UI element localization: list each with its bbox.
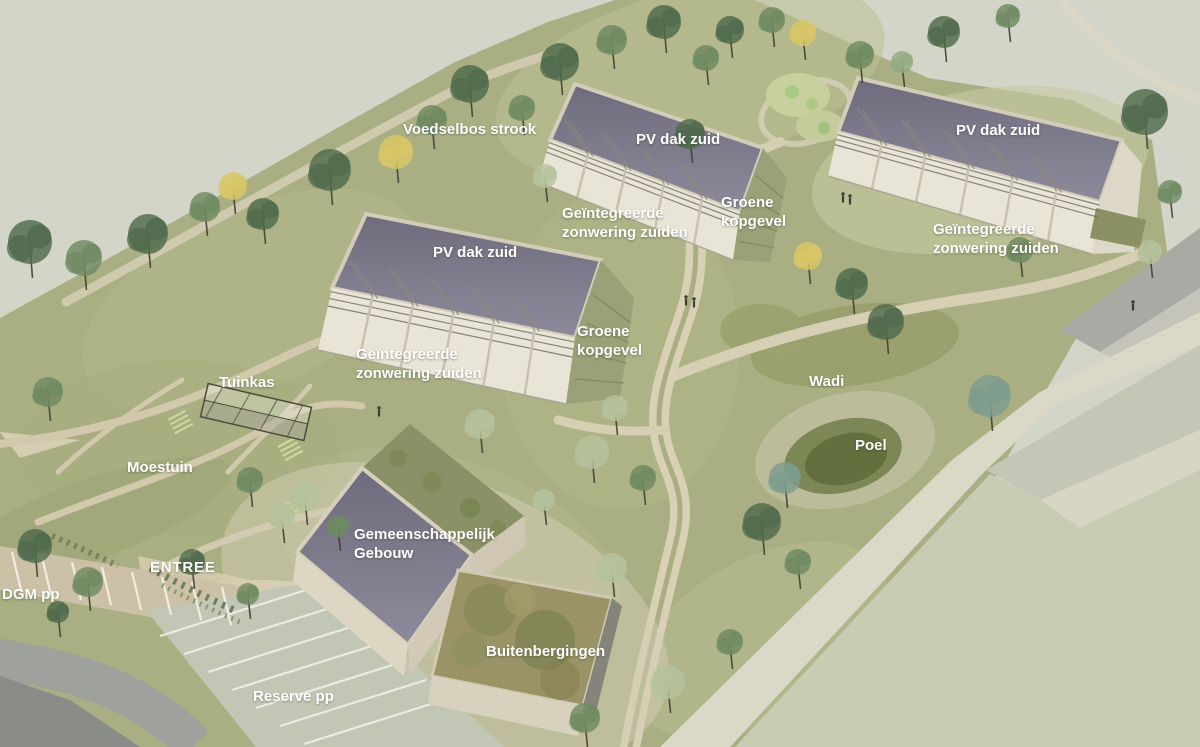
site-plan-rendering (0, 0, 1200, 747)
site-plan-canvas: Voedselbos strook PV dak zuid PV dak zui… (0, 0, 1200, 747)
